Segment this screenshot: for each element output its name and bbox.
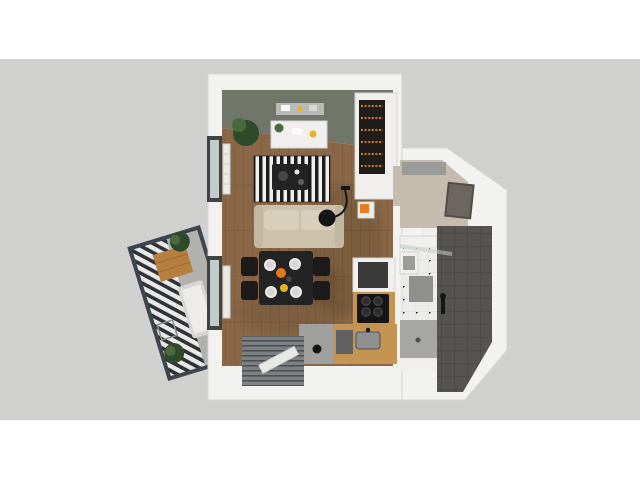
- shower-ledge: [400, 358, 437, 370]
- dining-chair: [241, 281, 258, 300]
- shelf-papers: [281, 105, 290, 111]
- counter-gray-top: [299, 324, 333, 364]
- top-white-bar: [0, 0, 640, 59]
- plate-center: [291, 260, 299, 268]
- render-canvas: [0, 0, 640, 480]
- console-plant: [275, 124, 284, 133]
- arc-floor-lamp: [319, 210, 336, 227]
- potted-plant-highlight: [232, 118, 246, 132]
- coffee-table-cup: [295, 170, 300, 175]
- wine-rack-interior: [359, 100, 385, 174]
- sofa-cushion: [264, 210, 299, 230]
- serving-bowl: [286, 276, 292, 282]
- kitchen-sink: [356, 332, 380, 349]
- radiator: [223, 266, 230, 318]
- wall-mirror: [445, 183, 473, 218]
- orange-label: [360, 204, 369, 213]
- window-glass: [210, 140, 219, 198]
- oven-front: [358, 262, 388, 288]
- radiator: [223, 144, 230, 194]
- shelf-box: [309, 105, 317, 111]
- sofa-armrest: [254, 205, 263, 248]
- bathroom-cabinet-front: [403, 256, 415, 270]
- dishwasher: [336, 330, 353, 354]
- kettle: [313, 345, 322, 354]
- burner: [374, 297, 382, 305]
- coffee-table: [272, 164, 308, 190]
- burner: [374, 308, 382, 316]
- console-paper: [291, 127, 302, 135]
- bath-mat: [409, 276, 433, 302]
- burner: [362, 297, 370, 305]
- plate-center: [292, 288, 300, 296]
- hall-cabinet: [402, 162, 446, 175]
- plate-center: [267, 288, 275, 296]
- dining-table: [259, 251, 313, 305]
- coffee-table-tray: [278, 171, 288, 181]
- cooktop: [357, 294, 389, 323]
- serving-dish: [276, 268, 286, 278]
- shower-head: [440, 293, 446, 299]
- shower-drain: [416, 338, 421, 343]
- dining-chair: [313, 281, 330, 300]
- dining-chair: [241, 257, 258, 276]
- bottom-white-bar: [0, 420, 640, 480]
- burner: [362, 308, 370, 316]
- floor-plan-render: [0, 0, 640, 480]
- shower-fixture: [441, 298, 445, 314]
- arc-lamp-base: [341, 186, 350, 190]
- coffee-table-vase: [298, 179, 304, 185]
- plate-center: [266, 261, 274, 269]
- serving-dish: [280, 284, 288, 292]
- balcony-door-glass: [210, 260, 219, 326]
- dining-chair: [313, 257, 330, 276]
- fruit-bowl: [310, 131, 317, 138]
- shelf-decor: [297, 106, 302, 111]
- faucet: [366, 328, 370, 332]
